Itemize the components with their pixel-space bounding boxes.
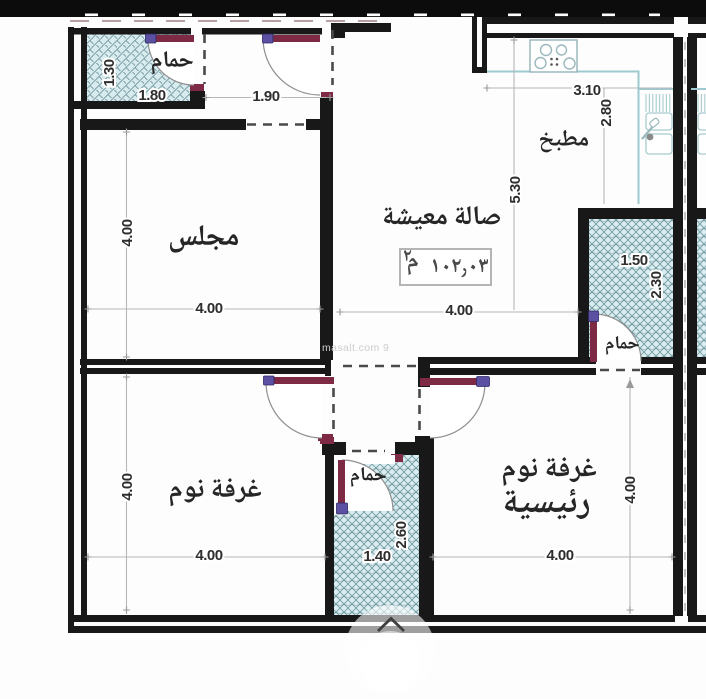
svg-text:4.00: 4.00 <box>119 473 136 500</box>
svg-text:2.60: 2.60 <box>393 521 410 548</box>
svg-text:4.00: 4.00 <box>445 302 472 319</box>
svg-text:2.80: 2.80 <box>598 99 615 126</box>
svg-text:masalt.com 9: masalt.com 9 <box>322 342 389 354</box>
svg-text:1.50: 1.50 <box>620 252 647 269</box>
svg-text:5.30: 5.30 <box>507 176 524 203</box>
svg-text:4.00: 4.00 <box>546 547 573 564</box>
svg-text:1.90: 1.90 <box>252 88 279 105</box>
svg-text:4.00: 4.00 <box>119 219 136 246</box>
svg-text:3.10: 3.10 <box>573 82 600 99</box>
svg-text:4.00: 4.00 <box>195 300 222 317</box>
svg-text:4.00: 4.00 <box>622 476 639 503</box>
svg-text:1.30: 1.30 <box>101 59 118 86</box>
svg-text:1.40: 1.40 <box>363 548 390 565</box>
svg-text:2.30: 2.30 <box>648 271 665 298</box>
svg-text:4.00: 4.00 <box>195 547 222 564</box>
svg-text:1.80: 1.80 <box>138 87 165 104</box>
